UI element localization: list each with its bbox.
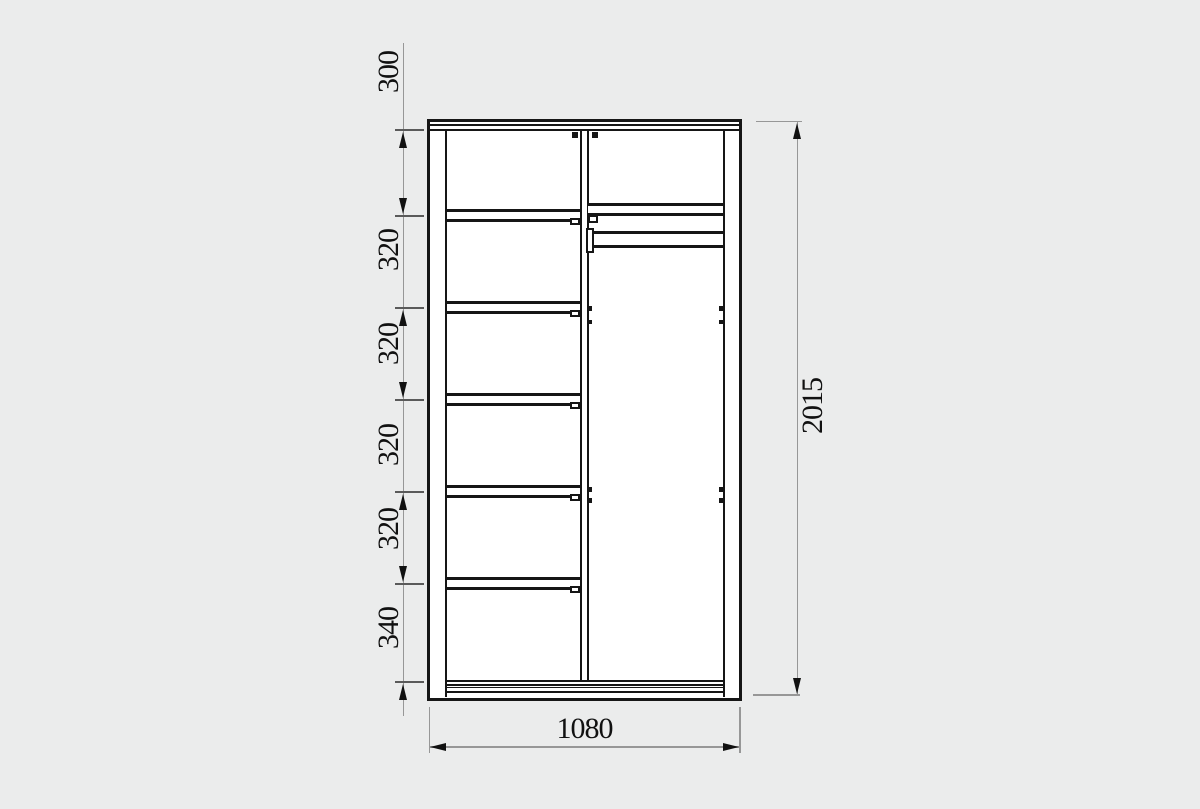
shelf (447, 209, 580, 222)
shelf (588, 203, 723, 217)
top-panel-line (430, 124, 739, 126)
dim-label-300: 300 (372, 51, 406, 93)
shelf-peg (719, 320, 724, 325)
dim-arrow-up (793, 123, 801, 139)
bottom-panel-line (447, 684, 723, 686)
dim-width-line (429, 746, 740, 748)
shelf (447, 301, 580, 314)
dim-tick (395, 215, 424, 217)
bottom-panel-line (447, 691, 723, 693)
shelf-bracket (570, 310, 581, 317)
shelf-bracket (570, 586, 581, 593)
rail-bracket (586, 228, 594, 253)
dim-label-320: 320 (372, 323, 406, 365)
dim-tick (395, 307, 424, 309)
shelf-bracket (570, 218, 581, 225)
hanging-rail (591, 231, 723, 248)
right-panel-line (723, 130, 725, 697)
shelf-bracket (588, 215, 598, 223)
top-fitting (572, 132, 579, 138)
shelf (447, 485, 580, 498)
shelf-peg (719, 487, 724, 492)
dim-tick (395, 681, 424, 683)
shelf-bracket (570, 494, 581, 501)
dim-tick (395, 129, 424, 131)
dim-arrow-up (399, 132, 407, 148)
dim-arrow-left (430, 743, 446, 751)
dim-arrow-up (399, 684, 407, 700)
technical-drawing-canvas: 300 320 320 320 320 340 2015 1080 (0, 0, 1200, 809)
shelf-peg (719, 306, 724, 311)
shelf-peg (587, 498, 592, 503)
dim-label-320: 320 (372, 424, 406, 466)
bottom-panel-line (447, 687, 723, 689)
top-fitting (592, 132, 599, 138)
dim-arrow-down (399, 198, 407, 214)
shelf-peg (587, 320, 592, 325)
shelf (447, 393, 580, 406)
dim-tick (395, 491, 424, 493)
bottom-panel-line (447, 680, 723, 682)
dim-ext-line (739, 707, 741, 753)
dim-arrow-down (399, 566, 407, 582)
dim-label-2015: 2015 (796, 378, 830, 434)
dim-label-1080: 1080 (557, 712, 613, 746)
shelf-peg (587, 306, 592, 311)
dim-label-320: 320 (372, 229, 406, 271)
dim-label-320: 320 (372, 508, 406, 550)
shelf-peg (719, 498, 724, 503)
dim-tick (395, 583, 424, 585)
shelf-bracket (570, 402, 581, 409)
dim-arrow-right (723, 743, 739, 751)
dim-arrow-down (793, 678, 801, 694)
shelf (447, 577, 580, 590)
dim-tick (395, 399, 424, 401)
shelf-peg (587, 487, 592, 492)
dim-arrow-down (399, 382, 407, 398)
dim-label-340: 340 (372, 607, 406, 649)
dim-ext-line (753, 694, 800, 696)
top-panel-line (430, 129, 739, 131)
